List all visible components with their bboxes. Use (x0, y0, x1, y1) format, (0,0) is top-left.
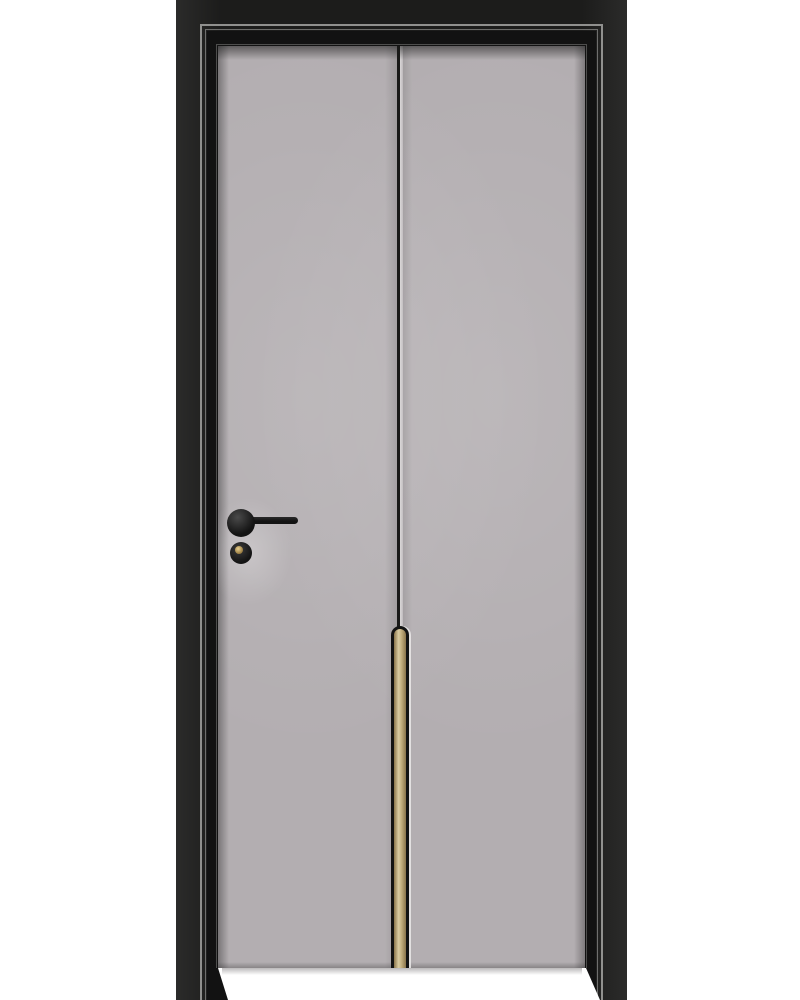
door-product-photo (0, 0, 800, 1000)
door-top-shade (218, 46, 585, 60)
door-bottom-shadow (222, 968, 582, 975)
keyhole (235, 546, 243, 554)
handle-rose (227, 509, 255, 537)
brass-inlay-fill (394, 629, 406, 968)
door-right-shade (574, 46, 585, 968)
lock-cylinder (230, 542, 252, 564)
door-leaf (218, 46, 585, 968)
brass-inlay-strip (391, 626, 409, 968)
